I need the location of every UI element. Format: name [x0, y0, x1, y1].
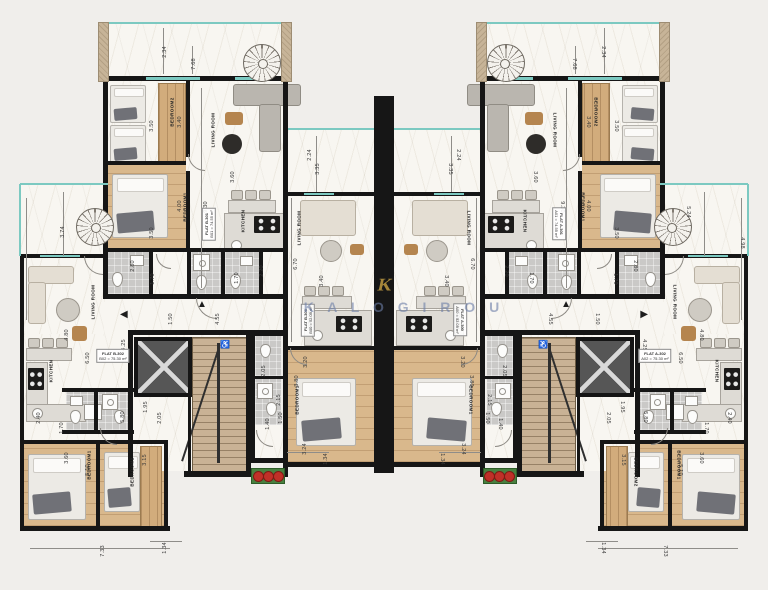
- dimension-label: 3.15: [620, 454, 626, 466]
- dimension-label: 2.05: [261, 365, 267, 377]
- dimension-label: 6.50: [85, 352, 91, 364]
- dimension-label: 7.68: [571, 58, 577, 70]
- dimension-label: 4.98: [739, 237, 745, 249]
- dimension-label: 1.70: [528, 272, 534, 284]
- dimension-label: 2.05: [605, 412, 611, 424]
- room-label: LIVING ROOM: [467, 211, 472, 246]
- dimension-label: 2.40: [726, 412, 732, 424]
- room-label: BEDROOM1: [87, 450, 92, 479]
- dimension-label: 2.05: [501, 365, 507, 377]
- dimension-label: 1.70: [234, 272, 240, 284]
- room-label: LIVING ROOM: [673, 285, 678, 320]
- dimension-label: 1.34: [323, 453, 329, 465]
- dimension-label: 3.35: [447, 163, 453, 175]
- room-label: BEDROOM2: [170, 97, 175, 126]
- dimension-label: 1.34: [439, 453, 445, 465]
- dimension-label: 4.00: [585, 200, 591, 212]
- dimension-label: 3.40: [585, 116, 591, 128]
- dimension-label: 2.80: [130, 260, 136, 272]
- dimension-label: 3.74: [60, 226, 66, 238]
- dimension-label: 3.60: [532, 171, 538, 183]
- dimension-label: 5.24: [685, 206, 691, 218]
- floor-plan: ▲ ◀ ♿: [0, 0, 768, 590]
- room-label: BEDROOM1: [581, 192, 586, 221]
- dimension-label: 1.95: [619, 401, 625, 413]
- dimension-label: 1.70: [59, 422, 65, 434]
- dimension-label: 3.50: [613, 227, 619, 239]
- dimension-label: 1.50: [594, 313, 600, 325]
- dimension-label: 2.20: [503, 265, 509, 277]
- dimension-label: 3.60: [230, 171, 236, 183]
- dimension-label: 4.80: [698, 329, 704, 341]
- flat-label: FLAT B-302B02 = 75.30 m²: [96, 349, 129, 363]
- room-label: KITCHEN: [49, 360, 54, 383]
- room-label: BEDROOM1: [295, 385, 300, 414]
- dimension-label: 3.40: [443, 275, 449, 287]
- dimension-label: 1.95: [143, 401, 149, 413]
- dimension-label: 3.24: [460, 443, 466, 455]
- dimension-label: 1.50: [484, 412, 490, 424]
- dimension-label: 3.50: [149, 227, 155, 239]
- dimension-label: 3.40: [177, 116, 183, 128]
- dimension-label: 3.20: [459, 356, 465, 368]
- dimension-label: 7.33: [662, 545, 668, 557]
- dimension-label: 2.15: [276, 394, 282, 406]
- dimension-label: 2.15: [486, 394, 492, 406]
- dimension-label: 4.80: [64, 329, 70, 341]
- room-label: BEDROOM1: [183, 192, 188, 221]
- dimension-label: 3.15: [142, 454, 148, 466]
- dimension-label: 1.34: [162, 542, 168, 554]
- dimension-label: 2.05: [157, 412, 163, 424]
- room-label: BEDROOM1: [469, 385, 474, 414]
- dimension-label: 1.70: [150, 273, 156, 285]
- flat-label: FLAT A-302A02 = 75.30 m²: [638, 349, 671, 363]
- room-label: KITCHEN: [523, 210, 528, 233]
- dimension-label: 5.80: [120, 411, 126, 423]
- room-label: LIVING ROOM: [297, 211, 302, 246]
- dimension-label: 2.24: [455, 149, 461, 161]
- dimension-label: 1.40: [265, 418, 271, 430]
- room-label: BEDROOM1: [677, 450, 682, 479]
- dimension-label: 7.33: [100, 545, 106, 557]
- dimension-label: 3.50: [149, 120, 155, 132]
- dimension-label: 3.50: [613, 120, 619, 132]
- room-label: KITCHEN: [715, 360, 720, 383]
- dimension-label: 1.50: [168, 313, 174, 325]
- dimension-label: 1.34: [600, 542, 606, 554]
- dimension-label: 3.60: [64, 452, 70, 464]
- room-label: LIVING ROOM: [211, 113, 216, 148]
- dimension-label: 1.70: [703, 422, 709, 434]
- room-label: KITCHEN: [241, 210, 246, 233]
- dimension-label: 1.40: [497, 418, 503, 430]
- dimension-label: 3.35: [315, 163, 321, 175]
- room-label: BEDROOM2: [130, 457, 135, 486]
- flat-label: FLAT A-301A01 = 74.55 m²: [552, 207, 566, 240]
- room-label: LIVING ROOM: [553, 113, 558, 148]
- dimension-label: 6.70: [293, 258, 299, 270]
- dimension-label: 3.24: [302, 443, 308, 455]
- dimension-label: 2.24: [307, 149, 313, 161]
- dimension-label: 6.50: [677, 352, 683, 364]
- dimension-label: 2.40: [36, 412, 42, 424]
- dimension-label: 7.68: [191, 58, 197, 70]
- room-label: LIVING ROOM: [91, 285, 96, 320]
- dimension-label: 3.60: [698, 452, 704, 464]
- dimension-label: 2.34: [600, 46, 606, 58]
- room-label: BEDROOM2: [594, 97, 599, 126]
- dimension-label: 4.55: [215, 313, 221, 325]
- room-label: BEDROOM2: [634, 457, 639, 486]
- dimension-label: 2.34: [162, 46, 168, 58]
- watermark-text: K A L O G I R O U: [304, 299, 504, 315]
- dimension-label: 1.70: [612, 273, 618, 285]
- dimension-label: 2.80: [632, 260, 638, 272]
- flat-label: FLAT B-301B01 = 74.55 m²: [202, 207, 216, 240]
- dimension-label: 2.20: [259, 265, 265, 277]
- dimension-label: 3.20: [303, 356, 309, 368]
- dimension-label: 1.50: [278, 412, 284, 424]
- dimension-label: 6.70: [469, 258, 475, 270]
- dimension-label: 4.55: [547, 313, 553, 325]
- dimension-label: 5.80: [642, 411, 648, 423]
- dimension-label: 3.40: [319, 275, 325, 287]
